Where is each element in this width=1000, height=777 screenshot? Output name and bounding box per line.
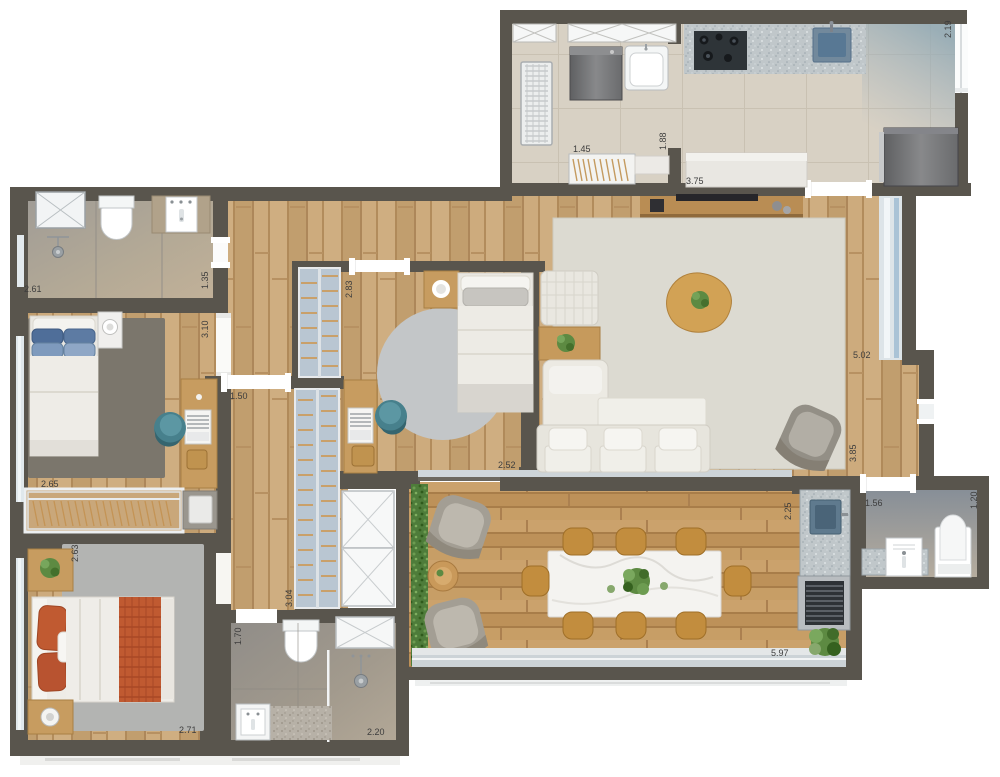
svg-text:3.04: 3.04	[284, 589, 294, 607]
svg-text:2.65: 2.65	[41, 479, 59, 489]
svg-text:3.10: 3.10	[200, 320, 210, 338]
svg-text:1.50: 1.50	[230, 391, 248, 401]
svg-text:3.75: 3.75	[686, 176, 704, 186]
svg-text:2.61: 2.61	[24, 284, 42, 294]
svg-text:5.97: 5.97	[771, 648, 789, 658]
svg-text:2.19: 2.19	[943, 20, 953, 38]
svg-text:2.71: 2.71	[179, 725, 197, 735]
svg-text:3.85: 3.85	[848, 444, 858, 462]
svg-text:1.56: 1.56	[865, 498, 883, 508]
svg-text:2.25: 2.25	[783, 502, 793, 520]
svg-text:2.20: 2.20	[367, 727, 385, 737]
svg-text:5.02: 5.02	[853, 350, 871, 360]
svg-text:2.83: 2.83	[344, 280, 354, 298]
svg-text:1.20: 1.20	[969, 491, 979, 509]
svg-text:1.45: 1.45	[573, 144, 591, 154]
svg-text:1.35: 1.35	[200, 271, 210, 289]
svg-text:2.52: 2.52	[498, 460, 516, 470]
svg-text:1.70: 1.70	[233, 627, 243, 645]
svg-text:2.63: 2.63	[70, 544, 80, 562]
svg-text:1.88: 1.88	[658, 132, 668, 150]
